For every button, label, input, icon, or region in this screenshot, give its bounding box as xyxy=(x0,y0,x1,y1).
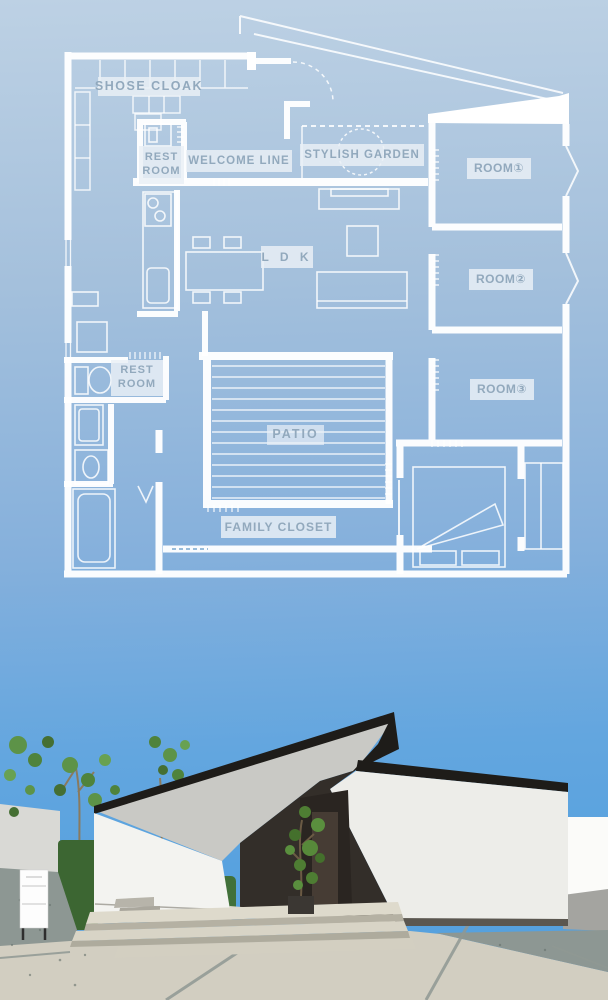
label-room-1: ROOM① xyxy=(467,158,531,179)
house-right-plinth xyxy=(390,918,568,926)
road-right xyxy=(563,889,608,931)
label-rest-room-upper: REST ROOM xyxy=(139,146,184,184)
label-shoe-cloak: SHOSE CLOAK xyxy=(98,77,200,96)
neighbor-building-right xyxy=(563,817,608,895)
bedroom-furniture xyxy=(413,463,563,567)
label-stylish-garden: STYLISH GARDEN xyxy=(300,144,424,166)
label-room-3: ROOM③ xyxy=(470,379,534,400)
label-line: ROOM xyxy=(118,378,156,392)
label-line: ROOM xyxy=(142,165,180,179)
floor-plan-drawing xyxy=(0,0,608,640)
label-ldk: L D K xyxy=(261,246,313,268)
label-line: REST xyxy=(145,151,178,165)
house-exterior-render xyxy=(0,670,608,1000)
label-rest-room-lower: REST ROOM xyxy=(111,360,163,396)
page: SHOSE CLOAK REST ROOM WELCOME LINE STYLI… xyxy=(0,0,608,1000)
label-family-closet: FAMILY CLOSET xyxy=(221,516,336,538)
label-room-2: ROOM② xyxy=(469,269,533,290)
label-welcome-line: WELCOME LINE xyxy=(186,150,292,172)
label-patio: PATIO xyxy=(267,425,324,445)
label-line: REST xyxy=(120,364,153,378)
